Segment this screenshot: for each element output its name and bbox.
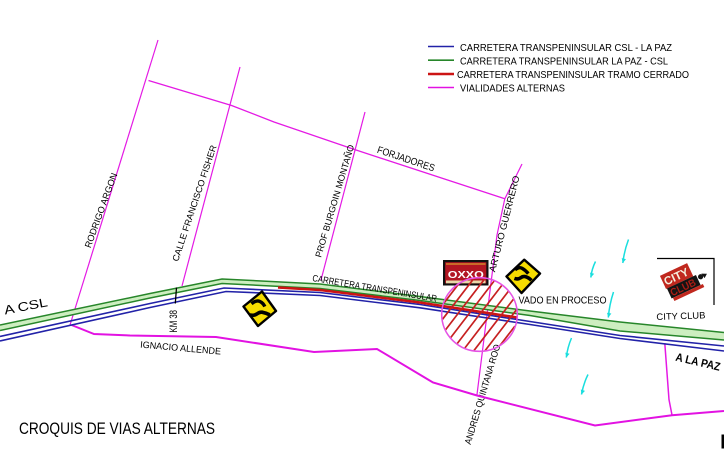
svg-text:IGNACIO ALLENDE: IGNACIO ALLENDE <box>140 340 222 357</box>
svg-text:A LA PAZ: A LA PAZ <box>674 352 721 374</box>
svg-text:CITY CLUB: CITY CLUB <box>656 310 705 322</box>
svg-text:VIALIDADES ALTERNAS: VIALIDADES ALTERNAS <box>460 84 565 95</box>
svg-text:KM 38: KM 38 <box>168 310 180 333</box>
svg-text:OXXO: OXXO <box>448 269 484 281</box>
svg-text:RODRIGO ARGON: RODRIGO ARGON <box>83 172 119 250</box>
svg-text:CARRETERA TRANSPENINSULAR LA P: CARRETERA TRANSPENINSULAR LA PAZ - CSL <box>460 56 668 67</box>
svg-text:ANDRES QUINTANA ROO: ANDRES QUINTANA ROO <box>463 343 502 445</box>
svg-text:VADO EN PROCESO: VADO EN PROCESO <box>519 296 607 307</box>
svg-text:CALLE FRANCISCO FISHER: CALLE FRANCISCO FISHER <box>170 143 218 262</box>
svg-text:CROQUIS DE VIAS ALTERNAS: CROQUIS DE VIAS ALTERNAS <box>19 419 215 438</box>
svg-text:ARTURO GUERRERO: ARTURO GUERRERO <box>487 175 521 273</box>
svg-text:CARRETERA TRANSPENINSULAR TRAM: CARRETERA TRANSPENINSULAR TRAMO CERRADO <box>457 70 689 81</box>
svg-text:PROF BURGOIN MONTAÑO: PROF BURGOIN MONTAÑO <box>313 144 356 259</box>
svg-text:A CSL: A CSL <box>3 295 49 317</box>
svg-text:CARRETERA TRANSPENINSULAR CSL: CARRETERA TRANSPENINSULAR CSL - LA PAZ <box>460 43 673 54</box>
